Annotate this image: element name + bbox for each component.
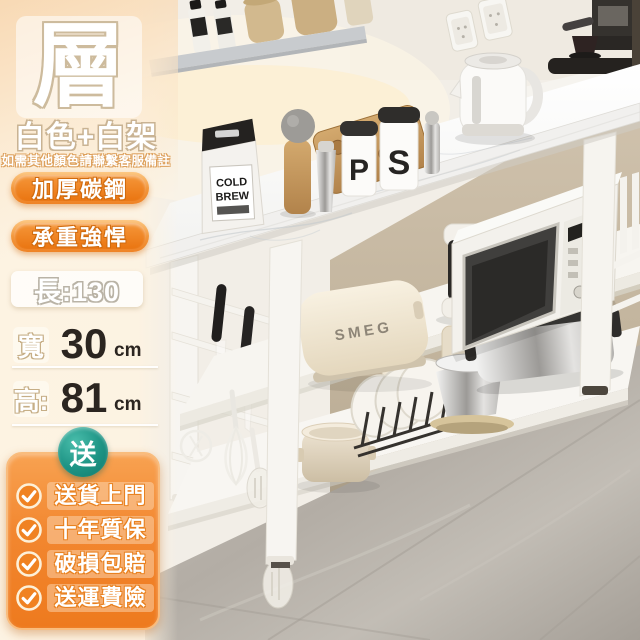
promo-rows: 送貨上門 十年質保 破損包賠 [16,482,154,618]
feature-badge-label: 加厚碳鋼 [32,172,128,204]
color-note: 如需其他顏色請聯繫客服備註 [0,150,172,169]
promo-row: 送貨上門 [16,482,154,510]
espresso-cup [572,36,598,54]
kettle-body [460,62,526,134]
side-rail [632,172,639,250]
promo-label: 十年質保 [47,516,154,544]
feature-badge-carbon-steel: 加厚碳鋼 [11,172,149,204]
height-value: 81 [56,374,112,422]
width-unit: cm [114,340,141,362]
width-dimension: 寬 30 cm [0,324,172,368]
kettle-window [472,76,481,124]
width-label: 寬 [13,327,49,363]
divider [12,366,158,368]
height-label: 高: [13,381,49,417]
promo-row: 十年質保 [16,516,154,544]
side-rail [620,176,627,254]
headline-chip: 層 [16,16,142,118]
divider [12,424,158,426]
promo-row: 送運費險 [16,584,154,612]
promo-row: 破損包賠 [16,550,154,578]
height-unit: cm [114,394,141,416]
check-icon [16,483,42,509]
height-dimension: 高: 81 cm [0,378,172,422]
length-dimension: 長:130 [11,271,143,307]
check-icon [16,585,42,611]
promo-panel: 送 送貨上門 十年質保 破損包賠 [6,452,160,630]
length-label: 長:130 [34,270,120,309]
pepper-grinder [280,109,316,218]
coffee-bag: COLD BREW [196,118,264,233]
promo-label: 破損包賠 [47,550,154,578]
storage-jar [243,0,285,44]
mini-grinder [424,111,440,174]
headline-char: 層 [33,21,125,113]
jar-letter: P [349,154,369,187]
gift-badge: 送 [58,427,108,477]
seasoning-jar-s: S [378,107,420,190]
feature-badge-load-bearing: 承重強悍 [11,220,149,252]
feature-badge-label: 承重強悍 [32,220,128,252]
promo-label: 送貨上門 [47,482,154,510]
check-icon [16,517,42,543]
table-leg-front-left [266,240,302,568]
jar-letter: S [388,144,411,182]
width-value: 30 [56,320,112,368]
product-image: SMEG [0,0,640,640]
seasoning-jar-p: P [340,121,378,196]
check-icon [16,551,42,577]
table-leg-front-right [580,132,616,396]
coffee-bag-text: BREW [215,190,250,204]
coffee-bag-text: COLD [216,176,248,190]
promo-label: 送運費險 [47,584,154,612]
